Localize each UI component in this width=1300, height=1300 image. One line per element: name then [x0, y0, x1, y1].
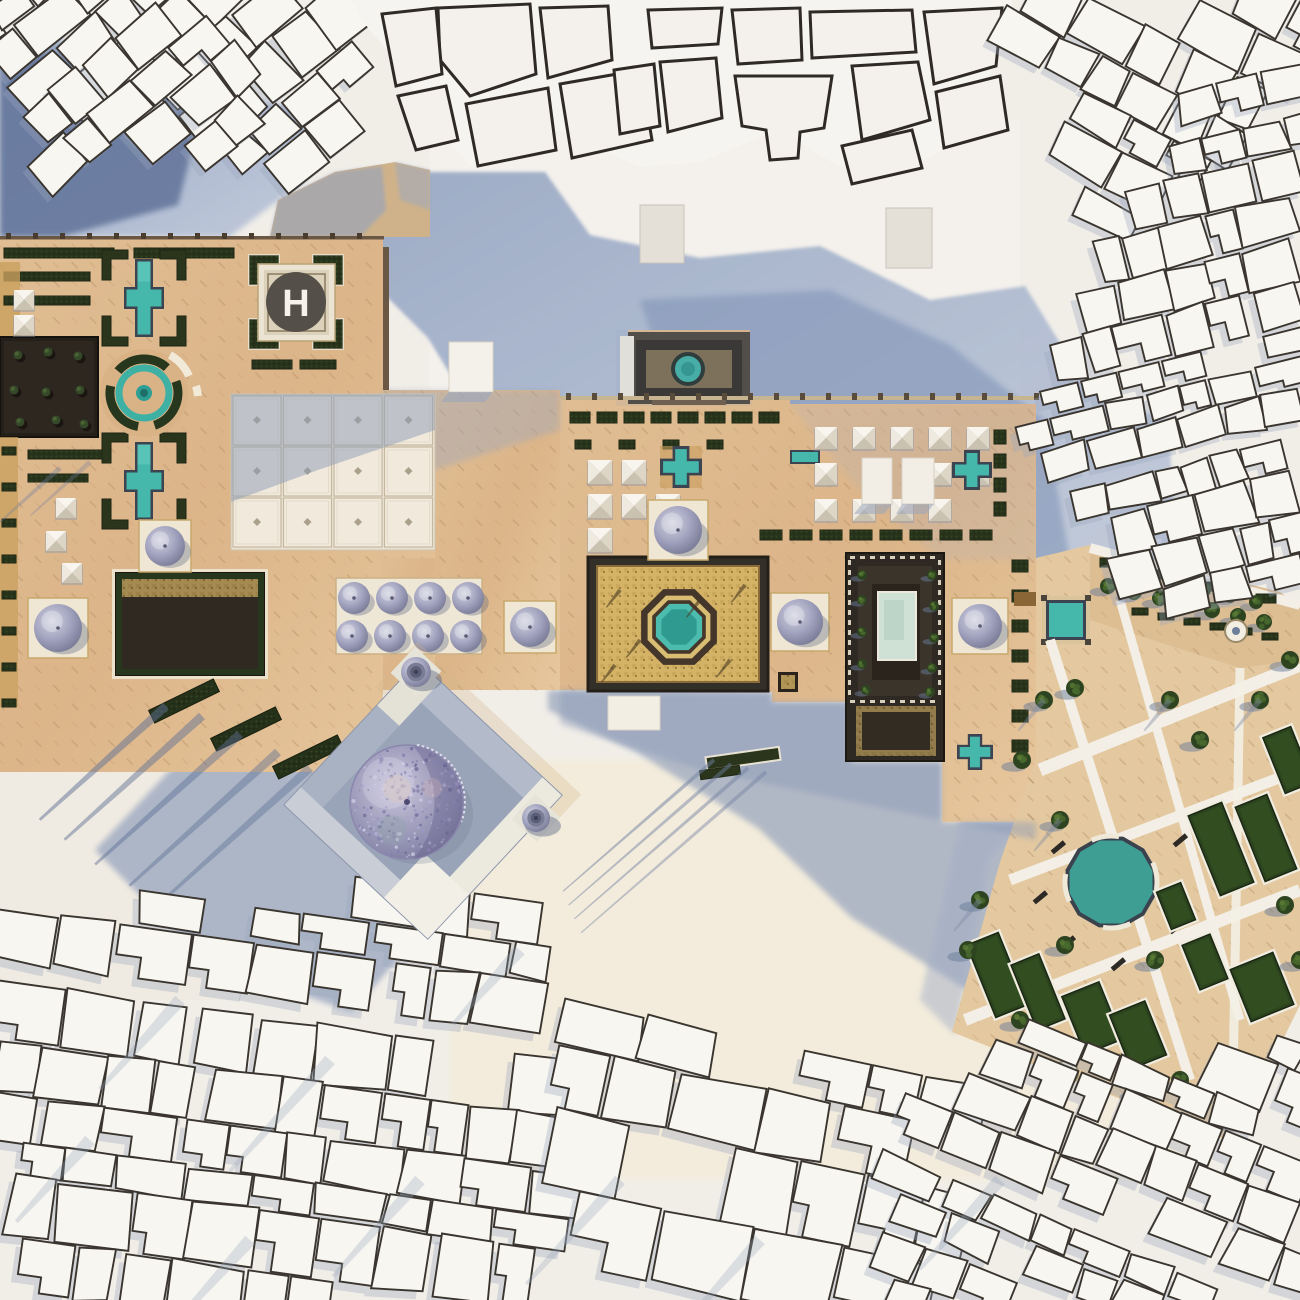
svg-text:H: H	[282, 283, 309, 325]
